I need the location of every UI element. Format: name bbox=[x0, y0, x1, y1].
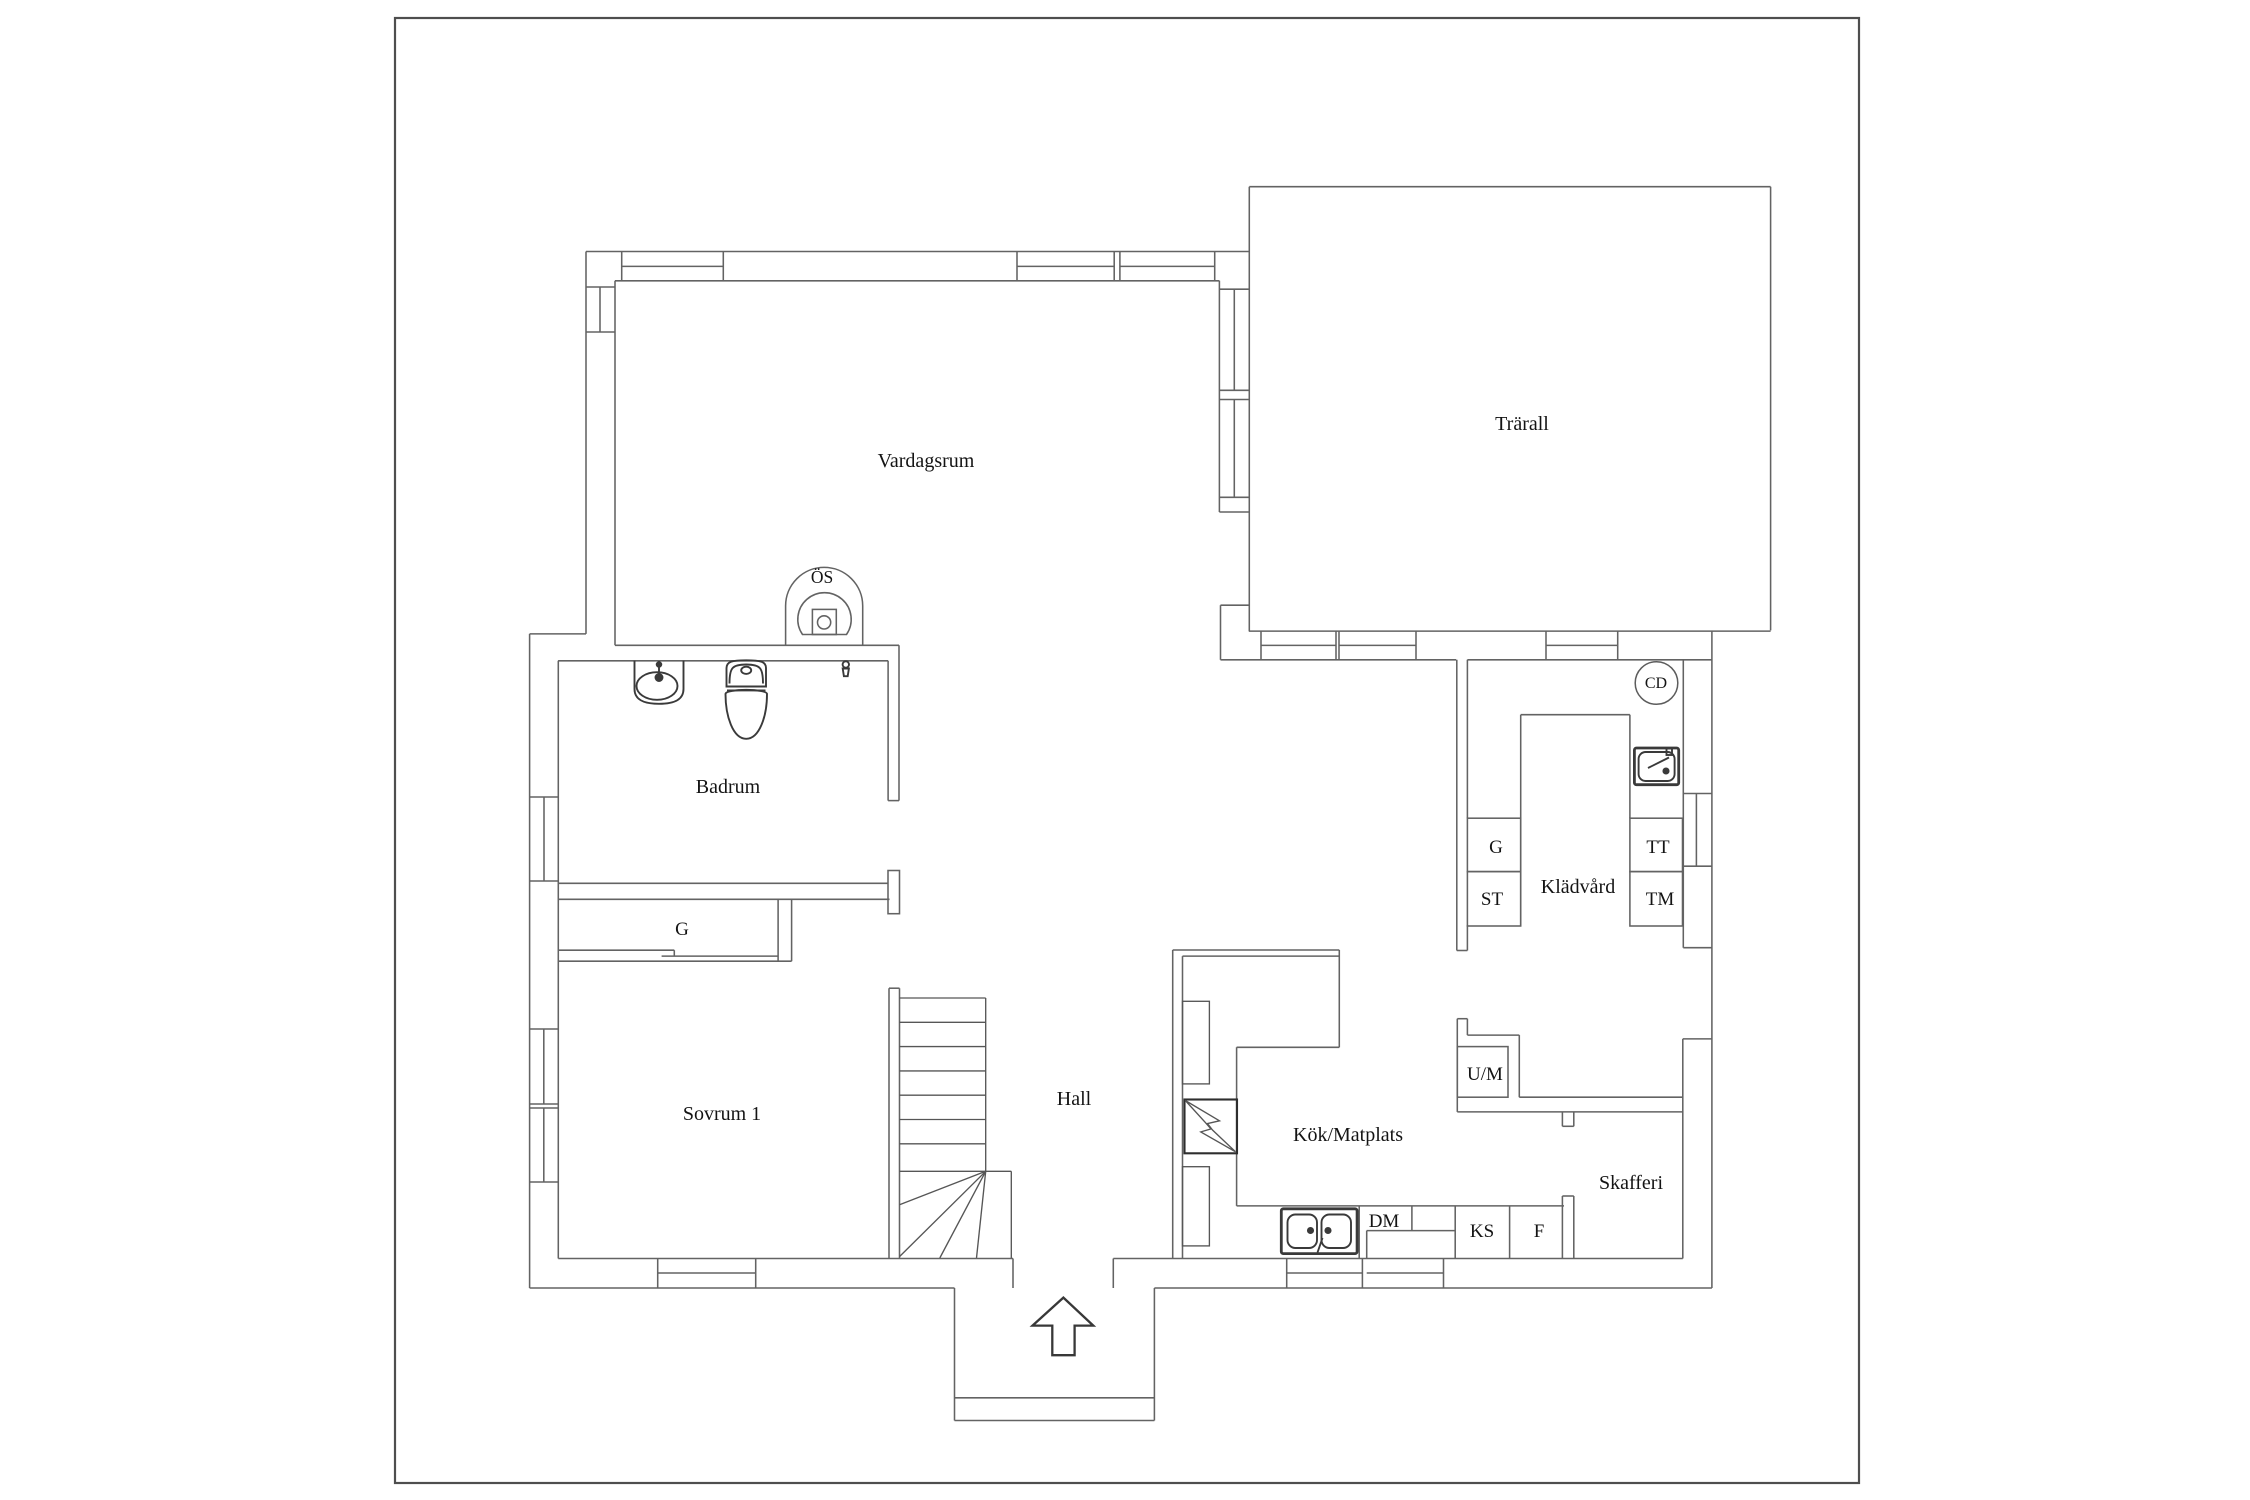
svg-text:KS: KS bbox=[1470, 1221, 1494, 1242]
svg-text:Kök/Matplats: Kök/Matplats bbox=[1293, 1124, 1403, 1146]
svg-text:DM: DM bbox=[1369, 1211, 1400, 1232]
svg-text:Trärall: Trärall bbox=[1495, 413, 1549, 435]
svg-text:ST: ST bbox=[1481, 889, 1504, 910]
svg-text:TM: TM bbox=[1646, 889, 1675, 910]
svg-text:Skafferi: Skafferi bbox=[1599, 1172, 1663, 1194]
svg-text:G: G bbox=[1489, 837, 1503, 858]
svg-text:Badrum: Badrum bbox=[696, 776, 761, 798]
svg-text:G: G bbox=[675, 919, 689, 940]
svg-text:CD: CD bbox=[1645, 675, 1667, 692]
svg-text:U/M: U/M bbox=[1467, 1064, 1503, 1085]
svg-text:F: F bbox=[1534, 1221, 1545, 1242]
svg-text:Vardagsrum: Vardagsrum bbox=[878, 450, 975, 472]
svg-text:TT: TT bbox=[1646, 837, 1670, 858]
svg-text:Sovrum 1: Sovrum 1 bbox=[683, 1103, 761, 1125]
svg-text:ÖS: ÖS bbox=[811, 567, 833, 587]
svg-text:Hall: Hall bbox=[1057, 1088, 1092, 1110]
svg-text:Klädvård: Klädvård bbox=[1541, 876, 1615, 898]
